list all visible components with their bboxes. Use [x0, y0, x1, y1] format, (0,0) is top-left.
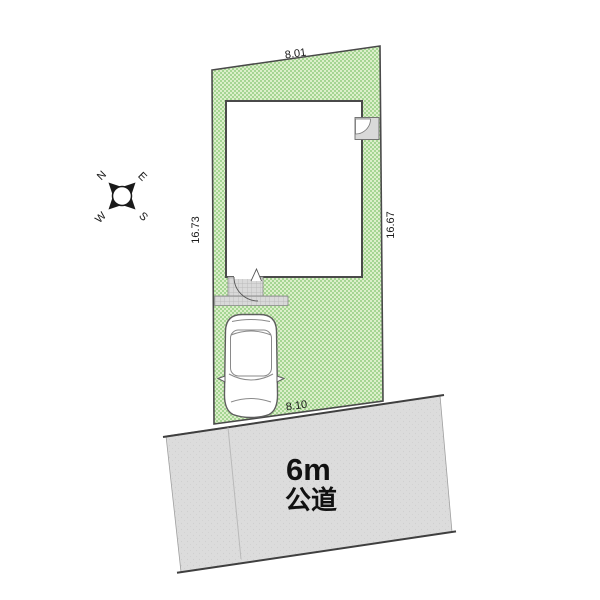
building [215, 101, 380, 306]
road-width-label: 6m [286, 452, 331, 487]
compass-hub [113, 187, 132, 206]
side-door [355, 118, 379, 140]
road: 6m 公道 [163, 395, 456, 573]
compass-south-label: S [136, 210, 150, 224]
road-type-label: 公道 [285, 485, 337, 515]
dim-right: 16.67 [385, 211, 397, 239]
compass-rose: N E W S [93, 169, 150, 226]
building-footprint [226, 101, 362, 277]
compass-north-label: N [95, 169, 109, 183]
dim-left: 16.73 [190, 216, 202, 244]
site-plan-page: 6m 公道 8.01 8.10 [0, 0, 600, 600]
entrance-porch-lower [215, 296, 289, 306]
site-plan: 6m 公道 8.01 8.10 [0, 0, 600, 600]
compass-east-label: E [135, 170, 149, 184]
car-top-view [218, 315, 284, 418]
compass-west-label: W [93, 210, 109, 226]
